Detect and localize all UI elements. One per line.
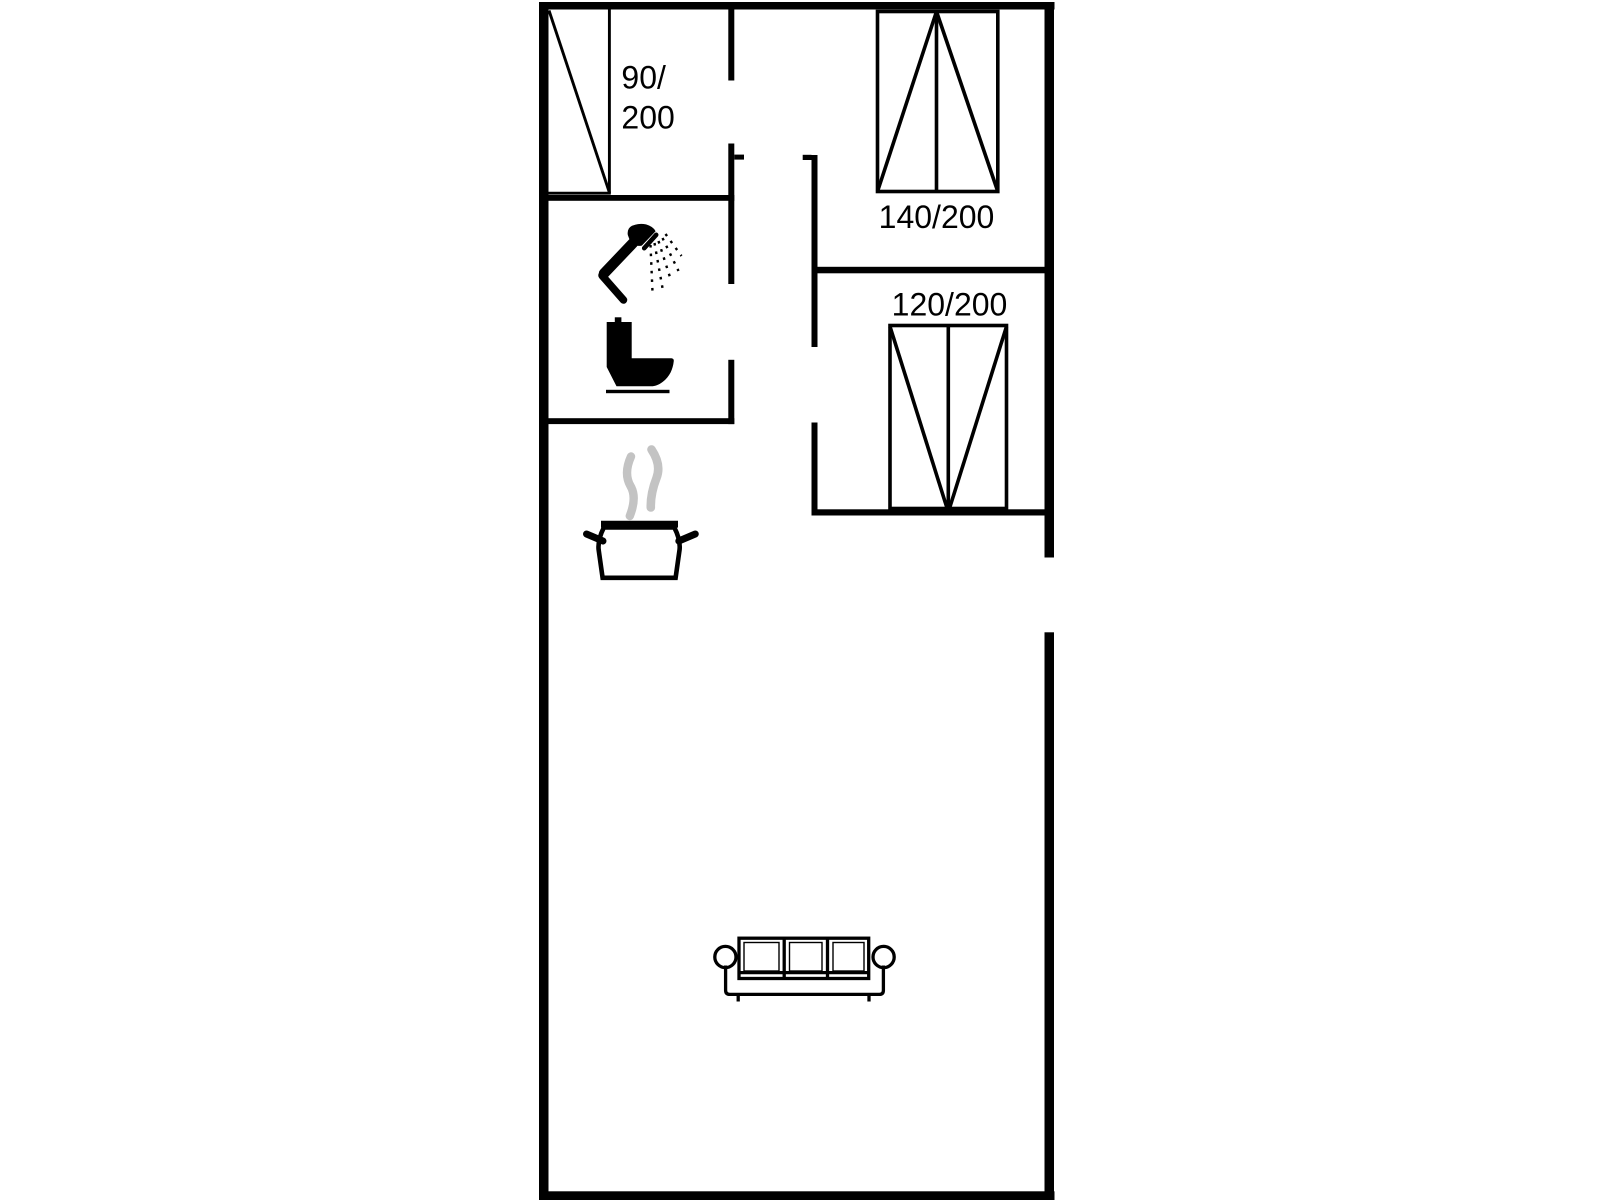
svg-text:90/: 90/ (621, 60, 666, 96)
svg-text:140/200: 140/200 (879, 199, 995, 235)
svg-text:120/200: 120/200 (892, 287, 1008, 323)
svg-text:200: 200 (621, 100, 674, 136)
